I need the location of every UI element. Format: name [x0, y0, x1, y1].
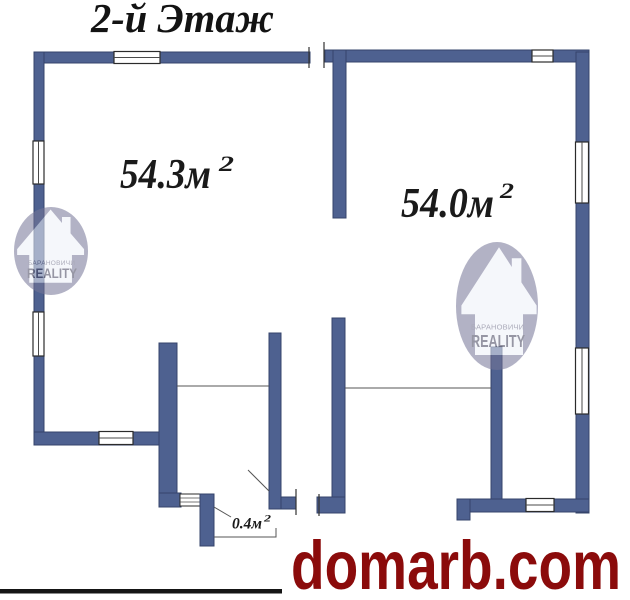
svg-text:2: 2 — [263, 515, 272, 525]
svg-text:REALITY: REALITY — [471, 331, 525, 351]
svg-text:2-й Этаж: 2-й Этаж — [90, 0, 274, 41]
svg-text:54.3м: 54.3м — [120, 152, 211, 198]
svg-text:2: 2 — [218, 151, 234, 176]
svg-text:REALITY: REALITY — [27, 265, 78, 281]
svg-text:0.4м: 0.4м — [232, 516, 262, 533]
svg-text:2: 2 — [499, 178, 514, 203]
svg-text:54.0м: 54.0м — [401, 181, 494, 227]
svg-text:domarb.com: domarb.com — [291, 527, 621, 600]
